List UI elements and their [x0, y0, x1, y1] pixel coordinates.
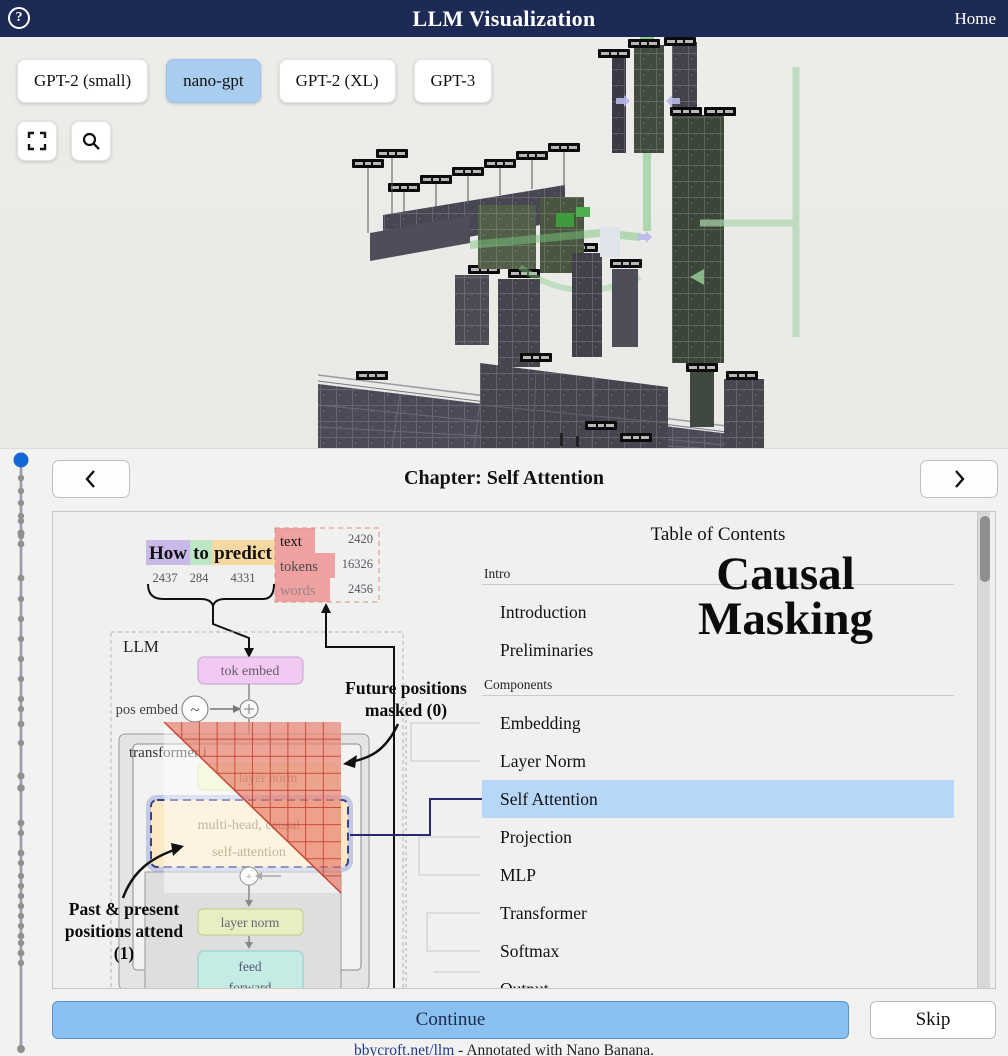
site-link[interactable]: bbycroft.net/llm	[354, 1042, 454, 1056]
search-button[interactable]	[71, 121, 111, 161]
svg-text:2420: 2420	[348, 532, 373, 546]
divider	[482, 695, 954, 696]
svg-text:2437: 2437	[153, 571, 178, 585]
svg-text:forward: forward	[229, 980, 272, 989]
chapter-title: Chapter: Self Attention	[0, 467, 1008, 490]
svg-text:to: to	[193, 543, 209, 564]
chapter-content-panel: How to predict 2437 284 4331 text tokens…	[52, 511, 996, 989]
svg-text:2456: 2456	[348, 582, 373, 596]
toc-item-output[interactable]: Output	[482, 970, 954, 989]
credit-text: - Annotated with Nano Banana.	[454, 1042, 654, 1056]
fullscreen-corners-icon	[27, 131, 47, 151]
svg-text:feed: feed	[238, 959, 261, 974]
svg-text:Past & present: Past & present	[69, 899, 180, 919]
toc-item-preliminaries[interactable]: Preliminaries	[482, 631, 954, 669]
svg-text:text: text	[280, 534, 302, 550]
next-chapter-button[interactable]	[920, 460, 998, 498]
model-button-gpt2-xl[interactable]: GPT-2 (XL)	[279, 59, 396, 103]
toc-item-projection[interactable]: Projection	[482, 818, 954, 856]
chevron-right-icon	[951, 468, 967, 490]
model-button-gpt2-small[interactable]: GPT-2 (small)	[17, 59, 148, 103]
skip-button[interactable]: Skip	[870, 1001, 996, 1039]
toc-item-mlp[interactable]: MLP	[482, 856, 954, 894]
layer-norm-lower-box: layer norm	[198, 909, 303, 935]
svg-text:words: words	[280, 583, 316, 599]
toc-item-softmax[interactable]: Softmax	[482, 932, 954, 970]
divider	[482, 584, 954, 585]
table-of-contents: Table of Contents Intro Introduction Pre…	[482, 512, 954, 989]
magnifier-icon	[81, 131, 101, 151]
svg-text:predict: predict	[214, 543, 272, 564]
svg-text:How: How	[149, 543, 187, 564]
model-selector: GPT-2 (small) nano-gpt GPT-2 (XL) GPT-3	[17, 59, 492, 103]
input-token-row: How to predict 2437 284 4331	[146, 540, 275, 585]
svg-text:4331: 4331	[231, 571, 256, 585]
toc-section-components: Components	[484, 677, 954, 695]
chapter-progress-timeline[interactable]	[0, 449, 42, 1056]
model-button-gpt3[interactable]: GPT-3	[414, 59, 493, 103]
app-title: LLM Visualization	[0, 6, 1008, 32]
model-viewport: GPT-2 (small) nano-gpt GPT-2 (XL) GPT-3	[0, 37, 1008, 448]
svg-text:~: ~	[191, 702, 200, 719]
timeline-current-marker[interactable]	[14, 453, 29, 468]
chapter-panel: Chapter: Self Attention	[0, 448, 1008, 1056]
svg-text:masked (0): masked (0)	[365, 700, 447, 720]
model-button-nano-gpt[interactable]: nano-gpt	[166, 59, 260, 103]
fullscreen-button[interactable]	[17, 121, 57, 161]
svg-text:tokens: tokens	[280, 559, 318, 575]
svg-text:(1): (1)	[114, 943, 135, 963]
footer-credit: bbycroft.net/llm - Annotated with Nano B…	[0, 1042, 1008, 1056]
svg-text:pos embed: pos embed	[116, 702, 179, 718]
toc-item-introduction[interactable]: Introduction	[482, 593, 954, 631]
svg-text:16326: 16326	[342, 557, 373, 571]
svg-text:tok embed: tok embed	[221, 664, 280, 679]
svg-text:+: +	[246, 872, 252, 883]
toc-item-self-attention[interactable]: Self Attention	[482, 780, 954, 818]
diagram-toc-connector	[350, 799, 482, 835]
navbar: ? LLM Visualization Home	[0, 0, 1008, 37]
toc-heading: Table of Contents	[482, 524, 954, 546]
toc-item-transformer[interactable]: Transformer	[482, 894, 954, 932]
svg-text:Future positions: Future positions	[345, 678, 467, 698]
tok-embed-box: tok embed	[198, 657, 303, 684]
svg-text:284: 284	[190, 571, 210, 585]
scrollbar-thumb[interactable]	[980, 516, 990, 582]
llm-visualization-app: ? LLM Visualization Home	[0, 0, 1008, 1056]
toc-item-embedding[interactable]: Embedding	[482, 704, 954, 742]
panel-scrollbar[interactable]	[977, 512, 990, 989]
home-link[interactable]: Home	[954, 9, 996, 29]
view-tools	[17, 121, 111, 161]
vocab-counts-block: text tokens words 2420 16326 2456	[275, 528, 379, 602]
continue-button[interactable]: Continue	[52, 1001, 849, 1039]
toc-item-layer-norm[interactable]: Layer Norm	[482, 742, 954, 780]
svg-text:LLM: LLM	[123, 637, 159, 656]
svg-text:layer norm: layer norm	[221, 915, 280, 930]
svg-text:positions attend: positions attend	[65, 921, 183, 941]
toc-section-intro: Intro	[484, 566, 954, 584]
chapter-actions: Continue Skip	[52, 1001, 996, 1039]
feed-forward-box: feed forward	[198, 951, 303, 989]
